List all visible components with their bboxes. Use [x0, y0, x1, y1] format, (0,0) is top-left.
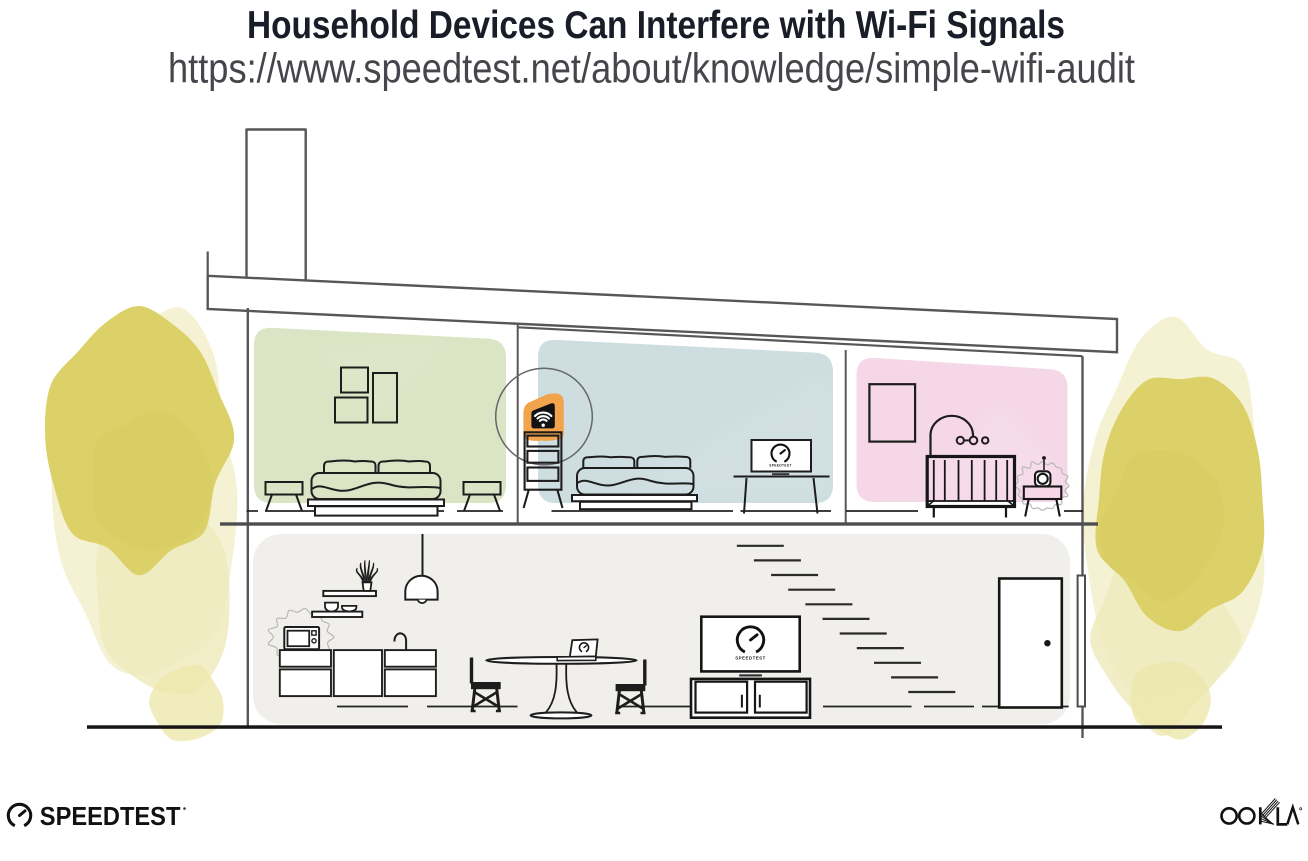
svg-text:SPEEDTEST: SPEEDTEST: [769, 463, 792, 467]
svg-text:https://www.speedtest.net/abou: https://www.speedtest.net/about/knowledg…: [168, 45, 1135, 92]
svg-text:Household Devices Can Interfer: Household Devices Can Interfere with Wi-…: [247, 4, 1065, 47]
svg-text:SPEEDTEST: SPEEDTEST: [40, 803, 181, 831]
svg-text:SPEEDTEST: SPEEDTEST: [735, 656, 766, 661]
